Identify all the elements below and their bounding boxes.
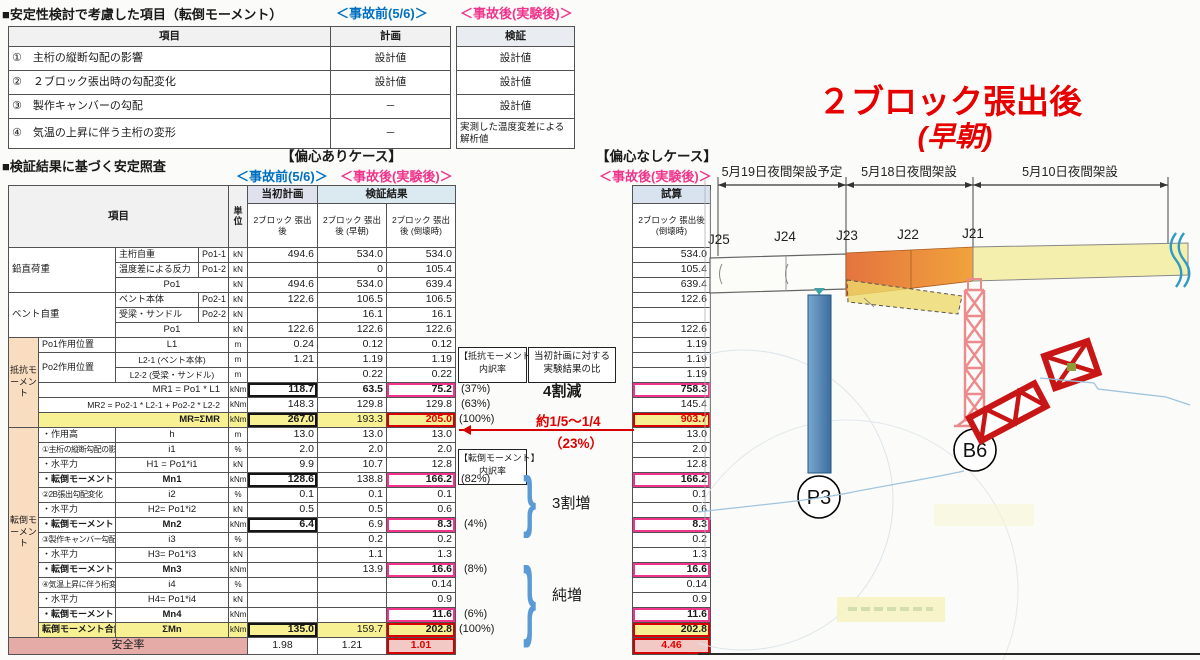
table-cell: ① 主桁の縦断勾配の影響 (9, 47, 331, 71)
table-row: 鉛直荷重 主桁自重Po1-1 kN 494.6534.0534.0 (9, 248, 456, 263)
table-cell: 6.9 (318, 518, 387, 533)
table-row: 設計値 (457, 71, 575, 95)
table-cell: 129.8 (387, 398, 456, 413)
table-cell: 0.2 (387, 533, 456, 548)
table-cell: MR1 = Po1 * L1 (39, 383, 229, 398)
table-row: ③ 製作キャンバーの勾配－ (9, 95, 451, 119)
arrowhead-icon (846, 182, 854, 188)
table-cell: 2ブロック 張出後 (倒壊時) (387, 204, 456, 248)
resisting-moment-ratio-box: 【抵抗モーメント】 内訳率 (458, 347, 527, 383)
table-cell: ② ２ブロック張出時の勾配変化 (9, 71, 331, 95)
net-increase-note: 純増 (552, 584, 582, 605)
table-header-row: 項目 単位 当初計画 検証結果 (9, 186, 456, 204)
arrowhead-icon (838, 182, 846, 188)
table-cell: ・転倒モーメント (39, 518, 116, 533)
pct-mn2: (4%) (464, 518, 487, 530)
table-cell: kN (229, 248, 248, 263)
table-cell: 0.22 (318, 368, 387, 383)
table-cell: 138.8 (318, 473, 387, 488)
safety-factor-collapse-value: 1.01 (387, 638, 456, 655)
joint-label-j22: J22 (897, 227, 919, 242)
table-cell: ・転倒モーメント (39, 563, 116, 578)
table-row: ④気温上昇に伴う桁変形 i4 % 0.14 (9, 578, 456, 593)
table-cell: 129.8 (318, 398, 387, 413)
mr-total-collapse-value: 205.0 (387, 413, 456, 428)
table-cell: 0 (318, 263, 387, 278)
table-cell: 159.7 (318, 623, 387, 638)
table-cell: 1.1 (318, 548, 387, 563)
table-cell: 0.1 (248, 488, 318, 503)
table-cell: 2.0 (318, 443, 387, 458)
table-header-row: 検証 (457, 27, 575, 47)
annotation-text: 当初計画に対する (529, 350, 615, 363)
table-cell: kN (229, 278, 248, 293)
table-cell: 単位 (229, 186, 248, 248)
table-cell: Po1 (116, 278, 229, 293)
table-cell: kNm (229, 398, 248, 413)
table-cell: MR=ΣMR (39, 413, 229, 428)
table-cell: 2ブロック 張出後 (248, 204, 318, 248)
table-row: ・水平力 H1 = Po1*i1 kN 9.910.712.8 (9, 458, 456, 473)
mn3-collapse-value: 16.6 (387, 563, 456, 578)
table-cell: Mn1 (116, 473, 229, 488)
table-cell: 534.0 (387, 248, 456, 263)
table-row: MR1 = Po1 * L1 kNm 118.7 63.5 75.2 (9, 383, 456, 398)
table-cell: 63.5 (318, 383, 387, 398)
girder-yellow-section (973, 243, 1188, 281)
table-row: ②2B張出勾配変化 i2 % 0.10.10.1 (9, 488, 456, 503)
arrowhead-icon (718, 182, 726, 188)
label-before-accident-top: ＜事故前(5/6)＞ (336, 3, 428, 22)
table-cell: kN (229, 263, 248, 278)
table-cell: 13.0 (318, 428, 387, 443)
table-cell: 0.14 (387, 578, 456, 593)
table-cell: 0.2 (318, 533, 387, 548)
table-cell: 検証 (457, 27, 575, 47)
show-through-highlight (934, 504, 1034, 526)
table-cell: i3 (116, 533, 229, 548)
table-cell: ベント本体 (116, 293, 199, 308)
annotation-text: 実験結果の比 (529, 363, 615, 376)
span-label-519: 5月19日夜間架設予定 (722, 164, 843, 179)
diagram-subtitle: (早朝) (918, 121, 993, 152)
table-cell: 当初計画 (248, 186, 318, 204)
table-cell: ・作用高 (39, 428, 116, 443)
annotation-text: 内訳率 (459, 363, 526, 376)
case-eccentric-label: 【偏心ありケース】 (281, 145, 402, 165)
table-cell: 設計値 (331, 71, 451, 95)
table-cell: ΣMn (116, 623, 229, 638)
table-cell: h (116, 428, 229, 443)
table-row: 抵抗モーメント Po1作用位置 L1 m 0.240.120.12 (9, 338, 456, 353)
verification-column-table: 検証 設計値 設計値 設計値 実測した温度変差による解析値 (456, 26, 575, 149)
table-cell (248, 368, 318, 383)
table-cell: 2ブロック 張出後 (早朝) (318, 204, 387, 248)
table-cell: ・転倒モーメント (39, 473, 116, 488)
table-cell: kN (229, 458, 248, 473)
ratio-percent-note: （23%） (549, 432, 603, 452)
table-cell: % (229, 578, 248, 593)
table-cell: 13.9 (318, 563, 387, 578)
table-cell: kNm (229, 383, 248, 398)
table-cell: 122.6 (248, 293, 318, 308)
table-cell: 16.1 (318, 308, 387, 323)
table-cell: 2.0 (387, 443, 456, 458)
girder-white-section (710, 254, 846, 293)
table-cell: kN (229, 308, 248, 323)
table-cell: kNm (229, 413, 248, 428)
mn1-collapse-value: 166.2 (387, 473, 456, 488)
table-cell: － (331, 95, 451, 119)
table-row: 設計値 (457, 95, 575, 119)
mr1-collapse-value: 75.2 (387, 383, 456, 398)
table-cell: ④ 気温の上昇に伴う主桁の変形 (9, 119, 331, 149)
table-row: ・転倒モーメント Mn1 kNm 128.6 138.8 166.2 (9, 473, 456, 488)
table-cell: kN (229, 503, 248, 518)
pct-mn1: (82%) (461, 473, 490, 485)
table-cell: 転倒モーメント合計 (39, 623, 116, 638)
table-row: ・水平力 H3= Po1*i3 kN 1.11.3 (9, 548, 456, 563)
table-cell: 鉛直荷重 (9, 248, 116, 293)
table-cell: 0.22 (387, 368, 456, 383)
table-cell: 1.19 (318, 353, 387, 368)
mn-total-collapse-value: 202.8 (387, 623, 456, 638)
table-cell: H3= Po1*i3 (116, 548, 229, 563)
table-cell: 105.4 (387, 263, 456, 278)
table-row: 転倒モーメント合計 ΣMn kNm 135.0 159.7 202.8 (9, 623, 456, 638)
table-cell: 0.5 (318, 503, 387, 518)
table-cell: kNm (229, 608, 248, 623)
table-cell (248, 578, 318, 593)
table-row: ④ 気温の上昇に伴う主桁の変形－ (9, 119, 451, 149)
table-row: Po2作用位置 L2-1 (ベント本体) m 1.211.191.19 (9, 353, 456, 368)
mn2-collapse-value: 8.3 (387, 518, 456, 533)
table-cell: 1.21 (248, 353, 318, 368)
table-cell: kNm (229, 518, 248, 533)
table-cell: Po1-1 (199, 248, 229, 263)
table-cell (248, 533, 318, 548)
table-row: ・転倒モーメント Mn3 kNm 13.9 16.6 (9, 563, 456, 578)
table-cell: Po1-2 (199, 263, 229, 278)
table-cell: 534.0 (318, 248, 387, 263)
joint-label-j21: J21 (962, 226, 984, 241)
table-cell: 項目 (9, 186, 229, 248)
table-cell: ・水平力 (39, 548, 116, 563)
table-cell: Mn2 (116, 518, 229, 533)
table-cell (248, 593, 318, 608)
table-cell: 2.0 (248, 443, 318, 458)
pct-mr1: (37%) (461, 383, 490, 395)
table-cell: 494.6 (248, 278, 318, 293)
table-row: ② ２ブロック張出時の勾配変化設計値 (9, 71, 451, 95)
table-cell: 0.1 (318, 488, 387, 503)
table-cell: 計画 (331, 27, 451, 47)
stability-check-table: 項目 単位 当初計画 検証結果 2ブロック 張出後 2ブロック 張出後 (早朝)… (8, 185, 456, 655)
debris-marker (1067, 363, 1076, 371)
table-cell: 設計値 (457, 71, 575, 95)
table-cell: 13.0 (387, 428, 456, 443)
table-cell: 1.98 (248, 638, 318, 655)
table-cell (318, 578, 387, 593)
table-cell: 10.7 (318, 458, 387, 473)
table-cell: Po2-1 (199, 293, 229, 308)
table-header-row: 項目計画 (9, 27, 451, 47)
table-cell (248, 608, 318, 623)
table-cell: % (229, 443, 248, 458)
table-cell (318, 608, 387, 623)
pct-mn4: (6%) (464, 608, 487, 620)
table-cell: kNm (229, 473, 248, 488)
brace-net-increase: } (523, 556, 536, 644)
table-cell: ③ 製作キャンバーの勾配 (9, 95, 331, 119)
table-cell: m (229, 353, 248, 368)
table-cell: Po1 (116, 323, 229, 338)
table-cell: L1 (116, 338, 229, 353)
table-cell: 0.12 (318, 338, 387, 353)
table-cell: kNm (229, 623, 248, 638)
table-cell: ・水平力 (39, 593, 116, 608)
table-cell: kN (229, 548, 248, 563)
pct-mn-total: (100%) (459, 623, 494, 635)
table-cell: Po2-2 (199, 308, 229, 323)
reduction-note: 4割減 (543, 380, 581, 401)
joint-label-j24: J24 (774, 229, 796, 244)
section-title: ■検証結果に基づく安定照査 (2, 156, 166, 175)
table-cell (248, 548, 318, 563)
table-cell: i2 (116, 488, 229, 503)
table-cell: 16.1 (387, 308, 456, 323)
arrowhead-icon (1160, 182, 1168, 188)
table-cell: 抵抗モーメント (9, 338, 39, 428)
table-cell: % (229, 533, 248, 548)
annotation-text: 【抵抗モーメント】 (459, 350, 526, 363)
page-title: ■安定性検討で考慮した項目（転倒モーメント） (2, 4, 282, 23)
table-row: 実測した温度変差による解析値 (457, 119, 575, 149)
arrowhead-icon (965, 182, 973, 188)
table-row: MR2 = Po2-1 * L2-1 + Po2-2 * L2-2 kNm 14… (9, 398, 456, 413)
table-cell: 122.6 (248, 323, 318, 338)
table-cell: Po2作用位置 (39, 353, 116, 383)
table-row: 設計値 (457, 47, 575, 71)
table-cell: Mn3 (116, 563, 229, 578)
table-cell: H1 = Po1*i1 (116, 458, 229, 473)
table-row: ① 主桁の縦断勾配の影響設計値 (9, 47, 451, 71)
table-cell: 受梁・サンドル (116, 308, 199, 323)
span-label-518: 5月18日夜間架設 (861, 164, 957, 179)
table-row: ベント自重 ベント本体Po2-1 kN 122.6106.5106.5 (9, 293, 456, 308)
pct-mn3: (8%) (464, 563, 487, 575)
table-row: ・水平力 H4= Po1*i4 kN 0.9 (9, 593, 456, 608)
arrowhead-icon (973, 182, 981, 188)
table-cell: 106.5 (387, 293, 456, 308)
table-cell: kN (229, 293, 248, 308)
table-cell: 148.3 (248, 398, 318, 413)
table-row: ①主桁の縦断勾配の影響 i1 % 2.02.02.0 (9, 443, 456, 458)
table-cell: kN (229, 593, 248, 608)
table-cell: 実測した温度変差による解析値 (457, 119, 575, 149)
table-cell: ・転倒モーメント (39, 608, 116, 623)
table-cell: 0.6 (387, 503, 456, 518)
label-after-accident: ＜事故後(実験後)＞ (340, 166, 453, 185)
table-cell: 0.9 (387, 593, 456, 608)
table-cell: L2-2 (受梁・サンドル) (116, 368, 229, 383)
table-cell: H2= Po1*i2 (116, 503, 229, 518)
consideration-items-table: 項目計画 ① 主桁の縦断勾配の影響設計値 ② ２ブロック張出時の勾配変化設計値 … (8, 26, 451, 149)
pier-p3 (808, 295, 831, 473)
table-cell: H4= Po1*i4 (116, 593, 229, 608)
table-row: ③製作キャンバー勾配 i3 % 0.20.2 (9, 533, 456, 548)
table-cell: 項目 (9, 27, 331, 47)
table-cell: 122.6 (318, 323, 387, 338)
table-cell: ②2B張出勾配変化 (39, 488, 116, 503)
label-before-accident: ＜事故前(5/6)＞ (236, 166, 328, 185)
table-cell: i4 (116, 578, 229, 593)
bent-label: B6 (963, 440, 987, 462)
table-cell (248, 263, 318, 278)
table-cell: i1 (116, 443, 229, 458)
brace-increase-30pct: } (523, 468, 536, 536)
table-cell: 転倒モーメント (9, 428, 39, 638)
table-cell: ①主桁の縦断勾配の影響 (39, 443, 116, 458)
label-after-accident-top: ＜事故後(実験後)＞ (460, 3, 573, 22)
plan-vs-experiment-box: 当初計画に対する 実験結果の比 (528, 347, 616, 383)
table-row: ・転倒モーメント Mn4 kNm 11.6 (9, 608, 456, 623)
mr-total-plan-value: 267.0 (248, 413, 318, 428)
table-cell: ・水平力 (39, 503, 116, 518)
pct-mr2: (63%) (461, 398, 490, 410)
table-row: ・水平力 H2= Po1*i2 kN 0.50.50.6 (9, 503, 456, 518)
increase-30pct-note: 3割増 (552, 492, 590, 513)
table-cell: m (229, 368, 248, 383)
table-cell: kN (229, 323, 248, 338)
mr1-plan-value: 118.7 (248, 383, 318, 398)
table-cell: 639.4 (387, 278, 456, 293)
table-cell: 主桁自重 (116, 248, 199, 263)
table-cell: 1.21 (318, 638, 387, 655)
table-cell: 設計値 (457, 47, 575, 71)
pier-cap-icon (814, 288, 825, 295)
table-cell: 122.6 (387, 323, 456, 338)
table-cell: 106.5 (318, 293, 387, 308)
joint-label-j23: J23 (836, 228, 858, 243)
table-cell: ④気温上昇に伴う桁変形 (39, 578, 116, 593)
table-cell: 494.6 (248, 248, 318, 263)
table-row: MR=ΣMR kNm 267.0 193.3 205.0 (9, 413, 456, 428)
table-cell (318, 593, 387, 608)
table-cell: MR2 = Po2-1 * L2-1 + Po2-2 * L2-2 (39, 398, 229, 413)
safety-factor-row: 安全率 1.98 1.21 1.01 (9, 638, 456, 655)
table-cell: ベント自重 (9, 293, 116, 338)
table-cell: 0.24 (248, 338, 318, 353)
table-cell: 0.12 (387, 338, 456, 353)
mn4-collapse-value: 11.6 (387, 608, 456, 623)
table-cell: 9.9 (248, 458, 318, 473)
table-cell: 193.3 (318, 413, 387, 428)
ratio-note: 約1/5～1/4 (536, 410, 601, 430)
table-cell: Mn4 (116, 608, 229, 623)
table-cell: L2-1 (ベント本体) (116, 353, 229, 368)
scanned-report-page: ■安定性検討で考慮した項目（転倒モーメント） ＜事故前(5/6)＞ ＜事故後(実… (0, 0, 1200, 660)
table-row: ・転倒モーメント Mn2 kNm 6.4 6.9 8.3 (9, 518, 456, 533)
table-cell: % (229, 488, 248, 503)
table-cell: 温度差による反力 (116, 263, 199, 278)
pct-mr-total: (100%) (459, 413, 494, 425)
table-cell: m (229, 428, 248, 443)
annotation-text: 【転倒モーメント】 (459, 452, 526, 465)
table-cell (248, 563, 318, 578)
table-cell: 検証結果 (318, 186, 456, 204)
table-cell: kNm (229, 563, 248, 578)
collapsed-truss-piece-large (969, 383, 1047, 441)
erection-diagram: ２ブロック張出後 (早朝) 5月19日夜間架設予定 5月18日夜間架設 5月10… (698, 60, 1200, 660)
table-cell: 0.1 (387, 488, 456, 503)
table-cell: 13.0 (248, 428, 318, 443)
table-cell: 安全率 (9, 638, 248, 655)
table-cell: 0.5 (248, 503, 318, 518)
table-cell: 12.8 (387, 458, 456, 473)
table-cell: 1.3 (387, 548, 456, 563)
mn1-plan-value: 128.6 (248, 473, 318, 488)
table-cell: － (331, 119, 451, 149)
table-cell: 設計値 (457, 95, 575, 119)
table-row: 転倒モーメント ・作用高 h m 13.013.013.0 (9, 428, 456, 443)
table-cell: 1.19 (387, 353, 456, 368)
diagram-title: ２ブロック張出後 (818, 83, 1083, 120)
table-cell (248, 308, 318, 323)
table-cell: 設計値 (331, 47, 451, 71)
table-cell: 534.0 (318, 278, 387, 293)
mn-total-plan-value: 135.0 (248, 623, 318, 638)
red-arrow (459, 429, 634, 431)
span-label-510: 5月10日夜間架設 (1022, 164, 1118, 179)
table-cell: ③製作キャンバー勾配 (39, 533, 116, 548)
table-cell: Po1作用位置 (39, 338, 116, 353)
mn2-plan-value: 6.4 (248, 518, 318, 533)
joint-label-j25: J25 (708, 232, 730, 247)
table-cell: ・水平力 (39, 458, 116, 473)
table-cell: m (229, 338, 248, 353)
label-after-accident-2: ＜事故後(実験後)＞ (599, 166, 712, 185)
